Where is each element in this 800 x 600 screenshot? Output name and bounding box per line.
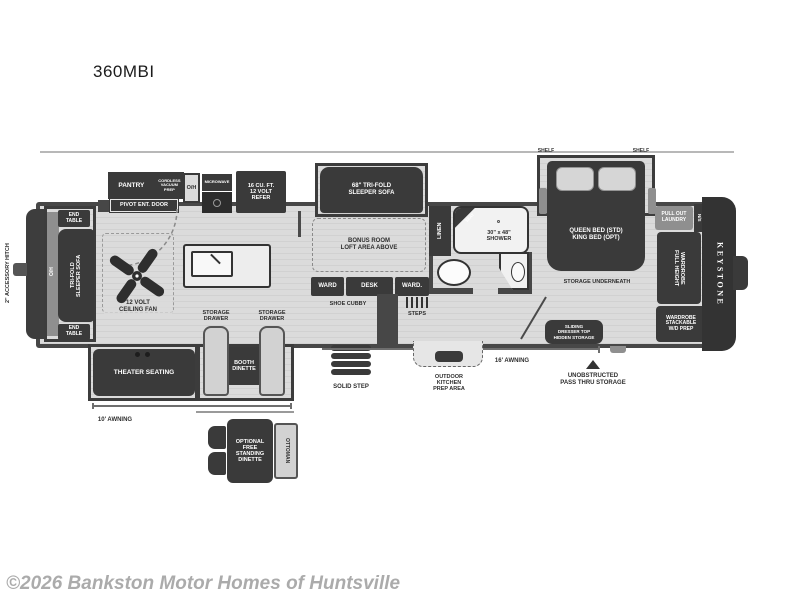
floorplan-page: 360MBI 2" ACCESSORY HITCH O/H END TABLE … xyxy=(0,0,800,600)
booth-slide-shadow-line xyxy=(196,411,294,413)
outdoor-grill-icon xyxy=(435,351,463,362)
awning-10-line xyxy=(92,405,292,407)
solid-step-icon xyxy=(331,345,371,379)
end-table-bottom: END TABLE xyxy=(58,324,90,340)
awning-10-label: 10' AWNING xyxy=(92,416,138,425)
linen-closet: LINEN xyxy=(429,206,451,256)
bedroom-step-tab xyxy=(610,346,626,353)
cordless-vacuum-label: CORDLESS VACUUM PREP xyxy=(155,172,184,199)
awning-16-label: 16' AWNING xyxy=(486,357,538,366)
awning-16-cap xyxy=(598,346,600,353)
microwave: MICROWAVE xyxy=(202,174,232,191)
pivot-entry-door: PIVOT ENT. DOOR xyxy=(110,199,178,212)
kitchen-oh-cabinet: O/H xyxy=(183,173,200,203)
cupholder-icon-1 xyxy=(135,352,140,357)
end-table-top: END TABLE xyxy=(58,210,90,227)
wardrobe-1: WARD xyxy=(311,277,344,296)
booth-bench-right xyxy=(259,326,285,396)
sofa68: 68" TRI-FOLD SLEEPER SOFA xyxy=(320,167,423,213)
optional-dinette-table: OPTIONAL FREE STANDING DINETTE xyxy=(227,419,273,483)
outdoor-kitchen-bay xyxy=(413,341,483,367)
bed-label: QUEEN BED (STD) KING BED (OPT) xyxy=(553,223,639,247)
stair-wall xyxy=(377,294,398,346)
pull-out-laundry: PULL OUT LAUNDRY xyxy=(655,206,693,230)
dinette-chair-1 xyxy=(208,426,226,449)
booth-table: BOOTH DINETTE xyxy=(229,347,259,385)
rear-cap: KEYSTONE xyxy=(702,197,736,351)
storage-drawer-label-1: STORAGE DRAWER xyxy=(194,308,238,324)
awning-10-cap-right xyxy=(290,403,292,409)
storage-drawer-label-2: STORAGE DRAWER xyxy=(250,308,294,324)
sliding-dresser: SLIDING DRESSER TOP HIDDEN STORAGE xyxy=(545,320,603,344)
bath-sink-icon xyxy=(511,262,525,282)
cupholder-icon-2 xyxy=(145,352,150,357)
queen-bed: QUEEN BED (STD) KING BED (OPT) xyxy=(547,161,645,271)
shower-label: 30" x 48" SHOWER xyxy=(473,225,525,247)
booth-bench-left xyxy=(203,326,229,396)
storage-underneath-label: STORAGE UNDERNEATH xyxy=(550,277,644,287)
stove-burner-icon xyxy=(213,199,221,207)
wardrobe-wd-prep: WARDROBE STACKABLE W/D PREP xyxy=(656,306,706,342)
keystone-logo: KEYSTONE xyxy=(712,209,726,339)
dinette-chair-2 xyxy=(208,452,226,475)
rear-bumper-icon xyxy=(733,256,748,290)
wardrobe-2: WARD. xyxy=(395,277,429,296)
pantry-cabinet: PANTRY CORDLESS VACUUM PREP xyxy=(108,172,184,199)
front-trifold-sofa: TRI-FOLD SLEEPER SOFA xyxy=(58,229,94,322)
pillow-right xyxy=(598,167,636,191)
ottoman: OTTOMAN xyxy=(274,423,298,479)
shower-drain-icon xyxy=(497,220,500,223)
awning-10-cap-left xyxy=(92,403,94,409)
ceiling-fan-label: 12 VOLT CEILING FAN xyxy=(104,299,172,315)
pass-thru-arrow-icon xyxy=(586,360,600,369)
shower: SEAT 30" x 48" SHOWER xyxy=(453,206,529,254)
bonus-room-zone: BONUS ROOM LOFT AREA ABOVE xyxy=(312,218,426,272)
hitch-pin-icon xyxy=(13,263,27,276)
bath-wall-bottom-left xyxy=(429,288,473,294)
entry-steps-icon xyxy=(406,297,428,308)
solid-step-label: SOLID STEP xyxy=(324,383,378,392)
pillow-left xyxy=(556,167,594,191)
door-hinge-wall xyxy=(98,200,110,212)
full-height-wardrobe: FULL HEIGHT WARDROBE xyxy=(657,232,701,304)
steps-label: STEPS xyxy=(400,310,434,319)
accessory-hitch-label: 2" ACCESSORY HITCH xyxy=(2,232,14,314)
page-title: 360MBI xyxy=(93,62,155,82)
counter-divider xyxy=(298,211,301,237)
toilet xyxy=(437,259,471,286)
watermark: ©2026 Bankston Motor Homes of Huntsville xyxy=(6,573,400,595)
shoe-cubby-label: SHOE CUBBY xyxy=(318,299,378,309)
outdoor-kitchen-label: OUTDOOR KITCHEN PREP AREA xyxy=(420,371,478,395)
bed-slide-rail-left xyxy=(539,188,547,214)
pantry-label: PANTRY xyxy=(108,172,155,199)
theater-seating: THEATER SEATING xyxy=(93,349,195,396)
refrigerator: 16 CU. FT. 12 VOLT REFER xyxy=(236,171,286,213)
pass-thru-label: UNOBSTRUCTED PASS THRU STORAGE xyxy=(546,371,640,389)
range-stove xyxy=(202,192,232,213)
kitchen-island xyxy=(183,244,271,288)
